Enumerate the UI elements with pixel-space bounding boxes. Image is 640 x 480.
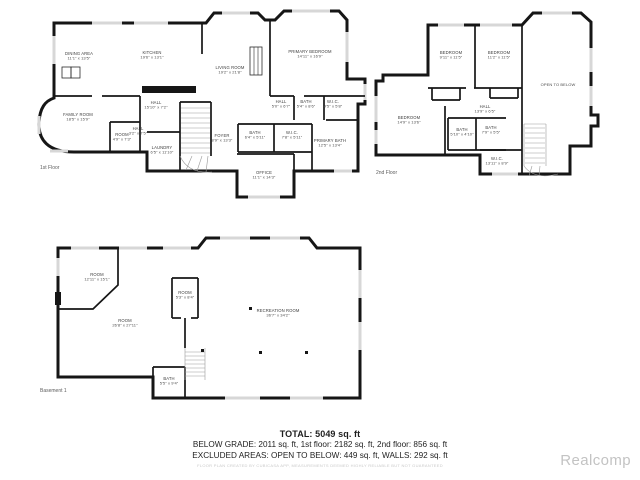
staircase xyxy=(180,108,212,172)
room-label: RECREATION ROOM36'7" x 34'2" xyxy=(257,308,300,318)
second-floor-plan: BEDROOM9'11" x 11'5"BEDROOM11'2" x 11'5"… xyxy=(372,4,612,186)
room-label: DINING AREA11'1" x 13'5" xyxy=(65,51,93,61)
room-label: FAMILY ROOM18'5" x 15'9" xyxy=(63,112,93,122)
room-label: BATH5'4" x 8'6" xyxy=(297,99,316,109)
room-labels: DINING AREA11'1" x 13'5"KITCHEN19'6" x 1… xyxy=(63,49,346,180)
room-label: HALL15'10" x 7'2" xyxy=(144,100,168,110)
room-label: LAUNDRY6'5" x 11'10" xyxy=(151,145,174,155)
support-columns xyxy=(55,292,308,354)
windows xyxy=(58,238,360,398)
staircase xyxy=(524,124,558,176)
room-label: FOYER8'9" x 13'3" xyxy=(212,133,233,143)
room-labels: ROOM12'11" x 15'1"ROOM26'8" x 27'11"ROOM… xyxy=(84,272,299,386)
room-label: ROOM12'11" x 15'1" xyxy=(84,272,110,282)
room-label: BATH7'9" x 5'5" xyxy=(482,125,501,135)
floor-plan-sheet: { "watermark": "Realcomp", "footer": { "… xyxy=(0,0,640,480)
room-label: BEDROOM9'11" x 11'5" xyxy=(440,50,463,60)
room-label: KITCHEN19'6" x 13'1" xyxy=(140,50,164,60)
kitchen-counter xyxy=(142,86,196,93)
exterior-walls xyxy=(58,238,360,398)
realcomp-watermark: Realcomp xyxy=(560,452,631,469)
room-label: BATH6'4" x 5'11" xyxy=(245,130,266,140)
room-label: W.I.C.13'11" x 8'9" xyxy=(486,156,509,166)
disclaimer-text: FLOOR PLAN CREATED BY CUBICASA APP, MEAS… xyxy=(0,463,640,468)
room-label: BEDROOM14'9" x 13'6" xyxy=(397,115,421,125)
room-label: BATH5'5" x 9'4" xyxy=(160,376,179,386)
room-label: PRIMARY BEDROOM14'11" x 16'9" xyxy=(288,49,332,59)
area-summary: TOTAL: 5049 sq. ft BELOW GRADE: 2011 sq.… xyxy=(0,429,640,468)
room-label: HALL13'9" x 6'5" xyxy=(475,104,496,114)
first-floor-drawing: DINING AREA11'1" x 13'5"KITCHEN19'6" x 1… xyxy=(34,4,370,200)
room-label: BATH5'10" x 4'10" xyxy=(450,127,474,137)
room-label: LIVING ROOM19'2" x 21'8" xyxy=(215,65,244,75)
room-label: OPEN TO BELOW xyxy=(541,82,576,87)
room-label: BEDROOM11'2" x 11'5" xyxy=(488,50,511,60)
room-labels: BEDROOM9'11" x 11'5"BEDROOM11'2" x 11'5"… xyxy=(397,50,575,166)
room-label: ROOM5'3" x 8'4" xyxy=(176,290,195,300)
room-label: OFFICE11'1" x 14'3" xyxy=(253,170,276,180)
room-label: W.I.C.7'8" x 5'11" xyxy=(282,130,303,140)
basement-floor-plan: ROOM12'11" x 15'1"ROOM26'8" x 27'11"ROOM… xyxy=(55,230,367,405)
second-floor-caption: 2nd Floor xyxy=(376,170,397,176)
basement-drawing: ROOM12'11" x 15'1"ROOM26'8" x 27'11"ROOM… xyxy=(55,230,367,405)
excluded-areas: EXCLUDED AREAS: OPEN TO BELOW: 449 sq. f… xyxy=(0,451,640,460)
staircase xyxy=(185,348,205,380)
interior-walls xyxy=(54,20,365,171)
room-label: HALL3'2" x 7'5" xyxy=(129,126,148,136)
room-label: W.I.C.4'5" x 5'8" xyxy=(324,99,343,109)
second-floor-drawing: BEDROOM9'11" x 11'5"BEDROOM11'2" x 11'5"… xyxy=(372,4,612,186)
basement-caption: Basement 1 xyxy=(40,388,67,394)
room-label: PRIMARY BATH12'5" x 13'4" xyxy=(314,138,346,148)
first-floor-caption: 1st Floor xyxy=(40,165,59,171)
interior-walls xyxy=(428,25,522,174)
room-label: ROOM26'8" x 27'11" xyxy=(112,318,138,328)
room-label: HALL5'0" x 6'7" xyxy=(272,99,291,109)
total-area: TOTAL: 5049 sq. ft xyxy=(0,429,640,439)
first-floor-plan: DINING AREA11'1" x 13'5"KITCHEN19'6" x 1… xyxy=(34,4,370,200)
area-breakdown: BELOW GRADE: 2011 sq. ft, 1st floor: 218… xyxy=(0,440,640,449)
